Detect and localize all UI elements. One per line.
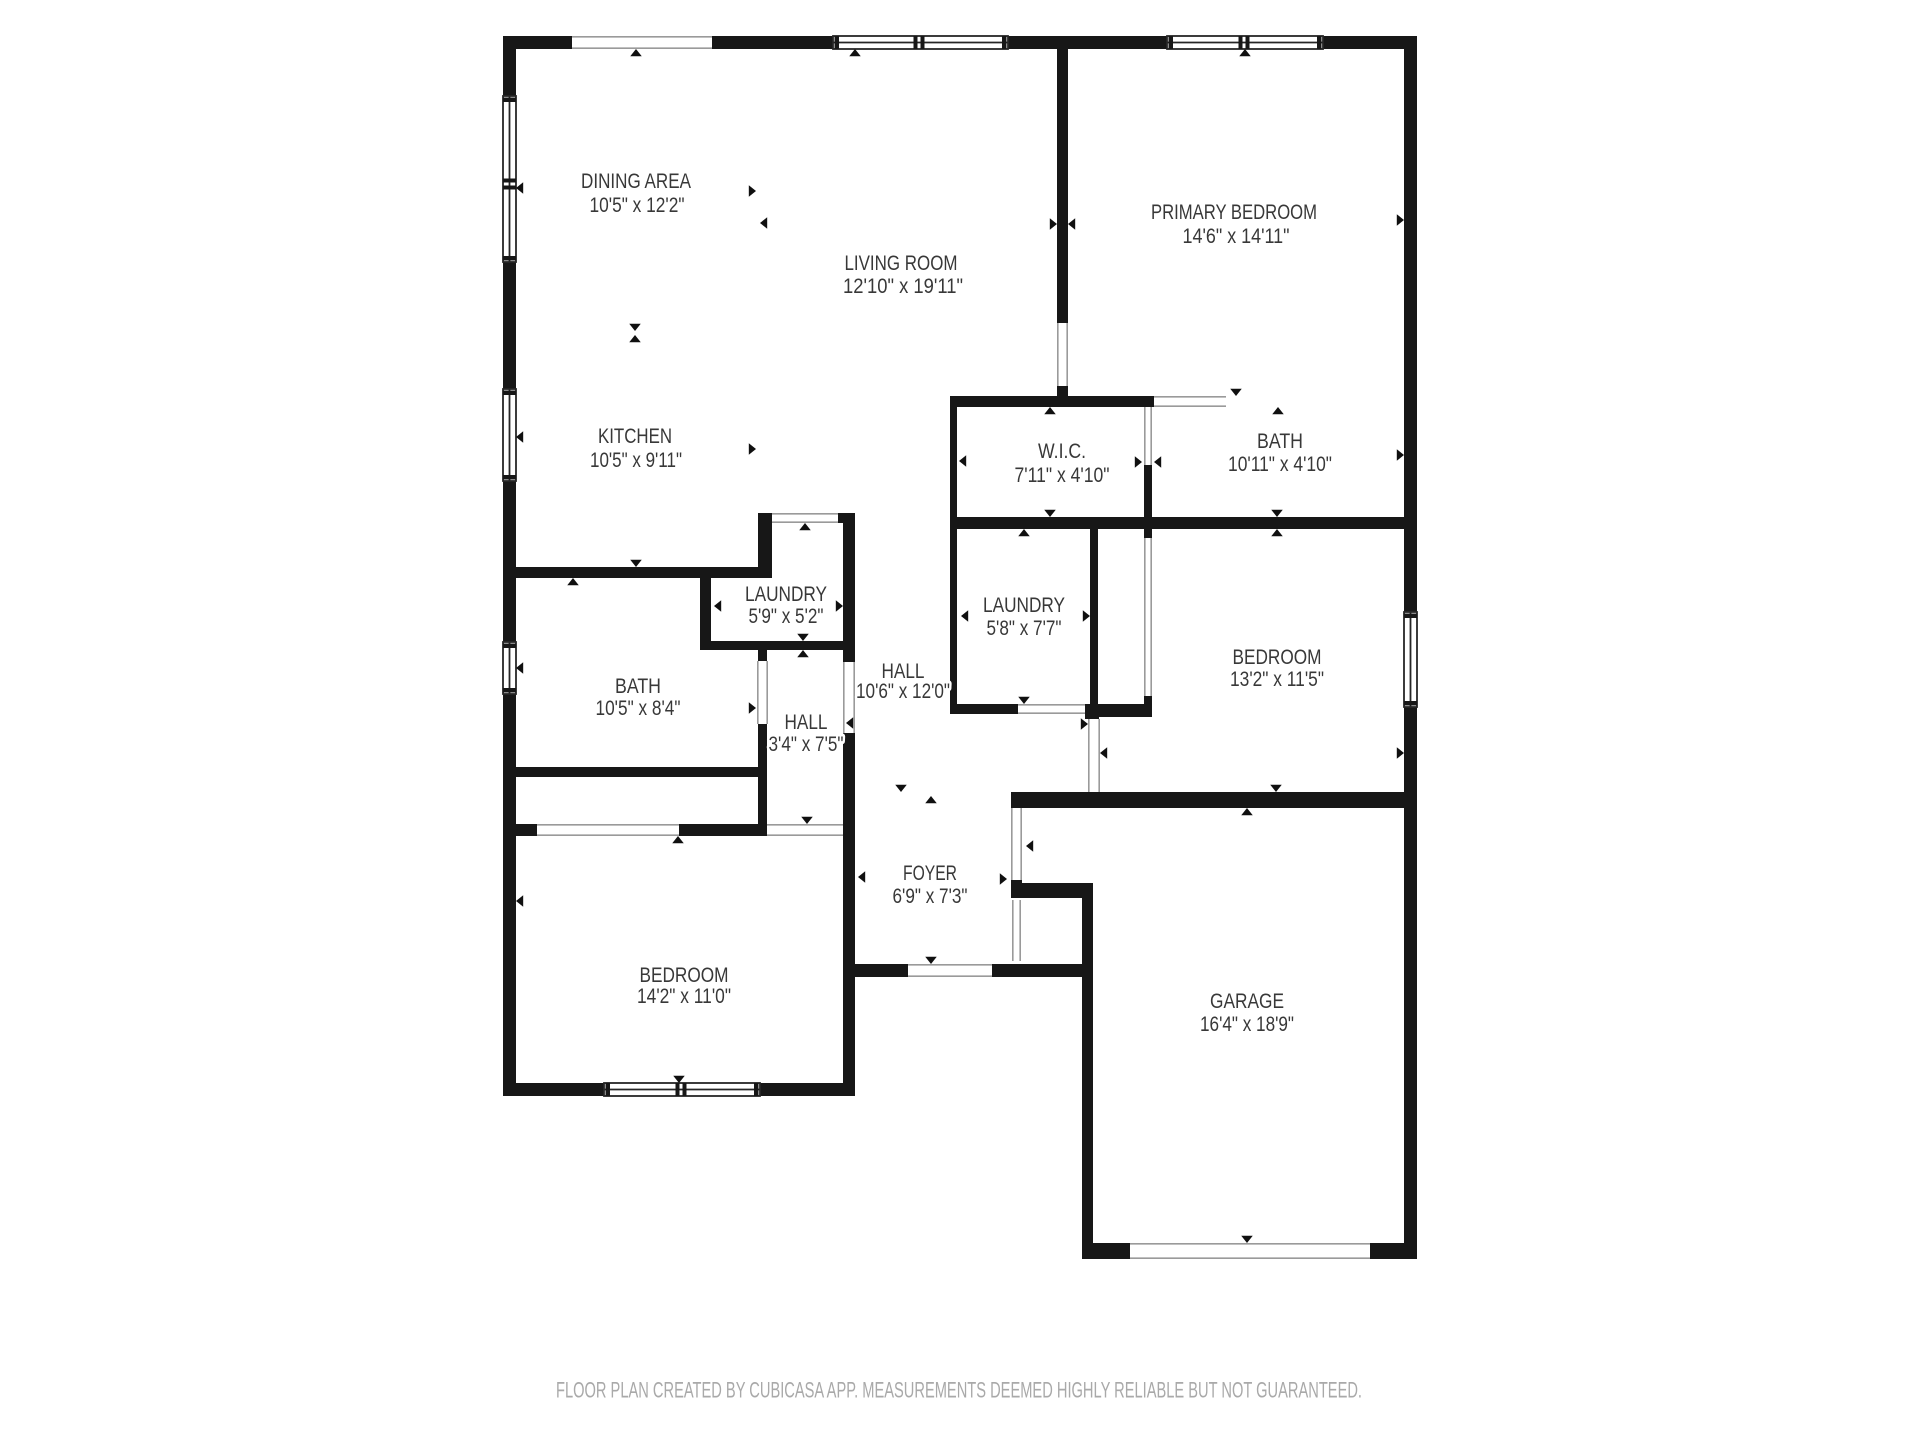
svg-text:BATH: BATH (1257, 429, 1303, 453)
svg-text:BEDROOM: BEDROOM (1233, 645, 1322, 669)
svg-text:14'6" x 14'11": 14'6" x 14'11" (1183, 224, 1290, 248)
svg-text:6'9" x 7'3": 6'9" x 7'3" (893, 884, 968, 908)
svg-text:16'4" x 18'9": 16'4" x 18'9" (1200, 1012, 1294, 1036)
svg-text:HALL: HALL (785, 710, 828, 734)
svg-text:13'2" x 11'5": 13'2" x 11'5" (1230, 667, 1324, 691)
svg-text:W.I.C.: W.I.C. (1038, 439, 1086, 463)
svg-text:10'6" x 12'0": 10'6" x 12'0" (856, 679, 950, 703)
svg-text:LAUNDRY: LAUNDRY (983, 593, 1065, 617)
svg-text:GARAGE: GARAGE (1210, 989, 1284, 1013)
svg-text:LIVING ROOM: LIVING ROOM (845, 251, 958, 275)
svg-text:LAUNDRY: LAUNDRY (745, 582, 827, 606)
svg-text:10'5" x 9'11": 10'5" x 9'11" (590, 448, 682, 472)
svg-text:DINING AREA: DINING AREA (581, 169, 692, 193)
svg-text:5'9" x 5'2": 5'9" x 5'2" (749, 604, 824, 628)
svg-text:10'11" x 4'10": 10'11" x 4'10" (1228, 452, 1332, 476)
svg-text:5'8" x 7'7": 5'8" x 7'7" (987, 616, 1062, 640)
svg-text:PRIMARY BEDROOM: PRIMARY BEDROOM (1151, 200, 1317, 224)
svg-text:12'10" x 19'11": 12'10" x 19'11" (843, 274, 963, 298)
svg-text:14'2" x 11'0": 14'2" x 11'0" (637, 984, 731, 1008)
svg-text:FLOOR PLAN CREATED BY CUBICASA: FLOOR PLAN CREATED BY CUBICASA APP. MEAS… (556, 1378, 1362, 1403)
svg-text:BATH: BATH (615, 674, 661, 698)
svg-text:7'11" x 4'10": 7'11" x 4'10" (1015, 463, 1110, 487)
svg-text:KITCHEN: KITCHEN (598, 424, 672, 448)
svg-text:3'4" x 7'5": 3'4" x 7'5" (769, 732, 844, 756)
svg-text:10'5" x 12'2": 10'5" x 12'2" (590, 193, 685, 217)
svg-text:10'5" x 8'4": 10'5" x 8'4" (596, 696, 681, 720)
svg-text:FOYER: FOYER (903, 861, 957, 885)
